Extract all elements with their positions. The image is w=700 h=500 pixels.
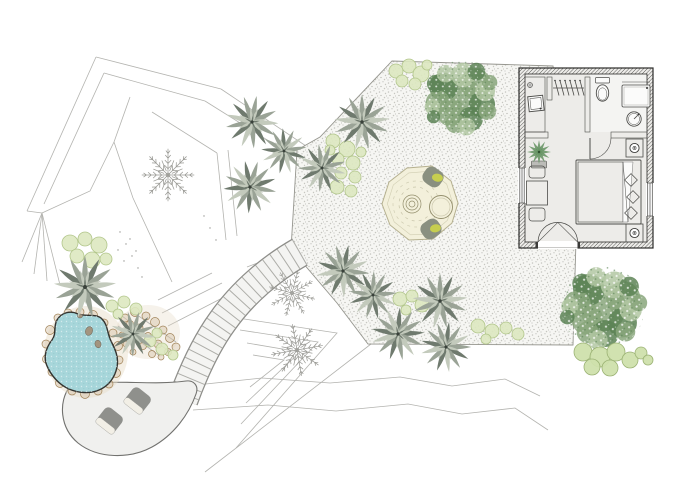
toilet xyxy=(596,78,610,102)
shower-tray xyxy=(622,82,650,107)
round-basin xyxy=(627,112,641,126)
canopy-tree xyxy=(424,61,499,136)
window-left xyxy=(518,168,526,203)
building-floor-plan xyxy=(518,68,654,249)
side-table xyxy=(430,196,453,219)
screenshot-root xyxy=(0,0,700,500)
window-right xyxy=(646,183,654,216)
fern-symbol xyxy=(142,149,195,202)
utility-sink xyxy=(528,95,544,111)
faucet-symbol xyxy=(528,83,533,88)
site-plan-canvas xyxy=(0,0,700,500)
